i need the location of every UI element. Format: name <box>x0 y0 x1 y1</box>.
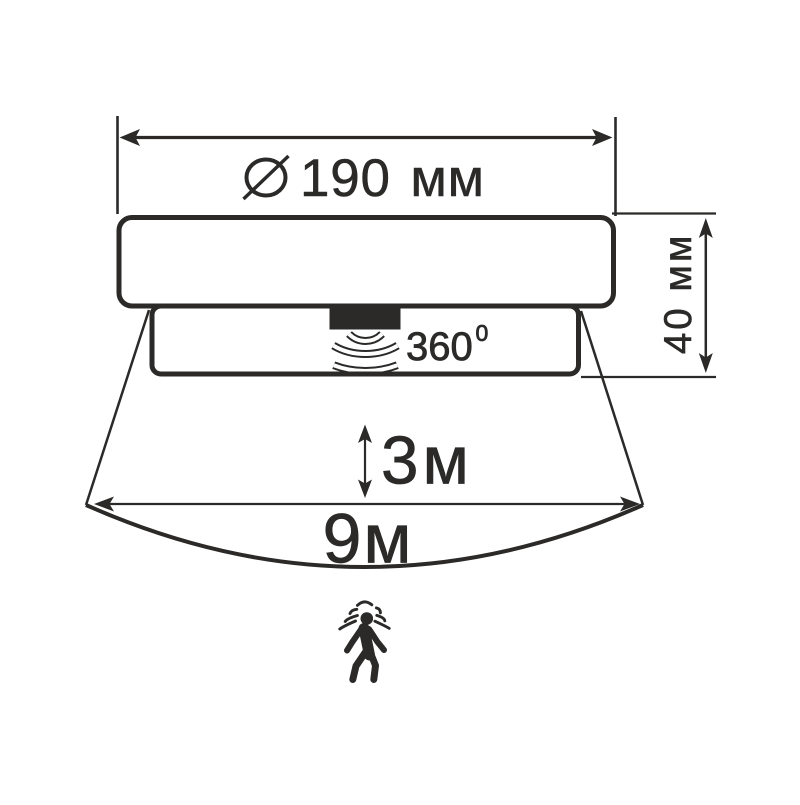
svg-text:0: 0 <box>476 320 489 346</box>
svg-text:3м: 3м <box>381 424 473 499</box>
svg-text:40 мм: 40 мм <box>657 233 700 354</box>
svg-text:9м: 9м <box>322 500 413 578</box>
svg-text:190 мм: 190 мм <box>300 149 485 208</box>
svg-text:360: 360 <box>406 325 473 369</box>
